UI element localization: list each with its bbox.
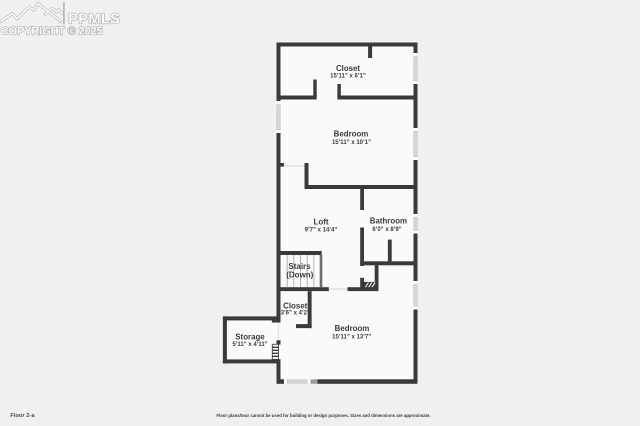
svg-text:Bedroom: Bedroom <box>334 130 369 139</box>
svg-text:Floor plans/tour cannot be use: Floor plans/tour cannot be used for buil… <box>216 413 430 418</box>
svg-text:9’7” x 14’4”: 9’7” x 14’4” <box>305 228 338 234</box>
svg-text:Closet: Closet <box>283 302 307 311</box>
svg-text:15’11” x 6’1”: 15’11” x 6’1” <box>330 74 366 80</box>
svg-text:15’11” x 10’1”: 15’11” x 10’1” <box>332 140 371 146</box>
svg-text:15’11” x 13’7”: 15’11” x 13’7” <box>332 334 371 340</box>
svg-text:Floor 2-a: Floor 2-a <box>10 413 35 419</box>
svg-text:Bedroom: Bedroom <box>335 324 370 333</box>
svg-text:Bathroom: Bathroom <box>370 216 407 225</box>
svg-text:3’6” x 4’2”: 3’6” x 4’2” <box>281 311 310 317</box>
svg-text:5’11” x 4’11”: 5’11” x 4’11” <box>232 342 267 348</box>
svg-text:COPYRIGHT © 2025: COPYRIGHT © 2025 <box>1 26 103 38</box>
svg-text:Storage: Storage <box>235 333 265 342</box>
svg-text:Closet: Closet <box>336 64 360 73</box>
svg-text:6’0” x 8’9”: 6’0” x 8’9” <box>372 227 401 233</box>
svg-text:(Down): (Down) <box>286 270 313 279</box>
svg-text:Loft: Loft <box>313 218 328 227</box>
